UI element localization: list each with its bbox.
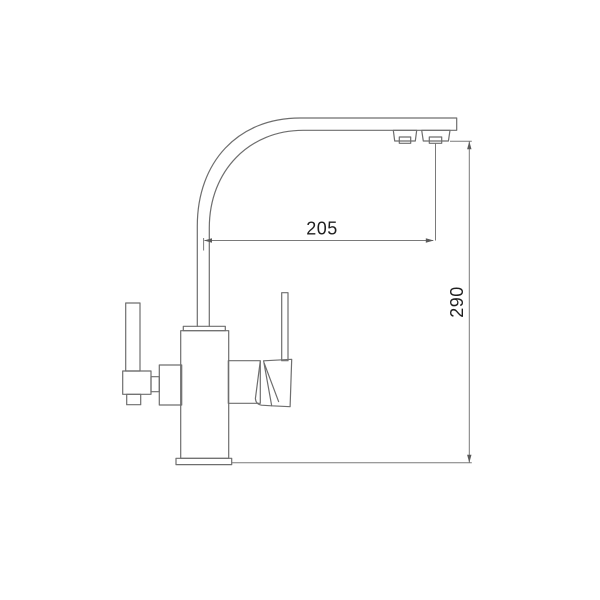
dimension-annotations (204, 141, 472, 462)
aerator-left-housing (393, 130, 416, 141)
dim-v-arrow-top (467, 141, 471, 149)
aerator-right-tip (429, 137, 441, 143)
dim-v-arrow-bottom (467, 455, 471, 463)
faucet-technical-drawing: 205 290 (0, 0, 600, 600)
aerator-right-housing (422, 130, 450, 141)
left-handle-bottom-tab (127, 394, 141, 404)
dimension-horizontal-label: 205 (306, 219, 338, 239)
body-top-flange (183, 326, 225, 330)
left-handle-connector (151, 377, 159, 392)
left-handle-body (123, 371, 151, 394)
dimension-vertical-label: 290 (447, 286, 467, 318)
left-handle-lever (126, 303, 140, 371)
dim-h-arrow-right (426, 238, 434, 242)
aerator-right (422, 130, 450, 143)
dim-h-arrow-left (204, 238, 212, 242)
aerator-left (393, 130, 416, 143)
aerator-left-tip (399, 137, 410, 143)
right-handle-seam (264, 363, 278, 401)
right-handle (228, 293, 291, 407)
left-handle (123, 303, 182, 405)
base-flange (176, 458, 232, 464)
faucet-outline (123, 118, 457, 465)
body-column (181, 331, 229, 459)
right-handle-lever (282, 293, 288, 361)
left-cartridge-housing (159, 365, 181, 405)
drawing-canvas: 205 290 (0, 0, 600, 600)
right-handle-front-band (255, 362, 271, 406)
